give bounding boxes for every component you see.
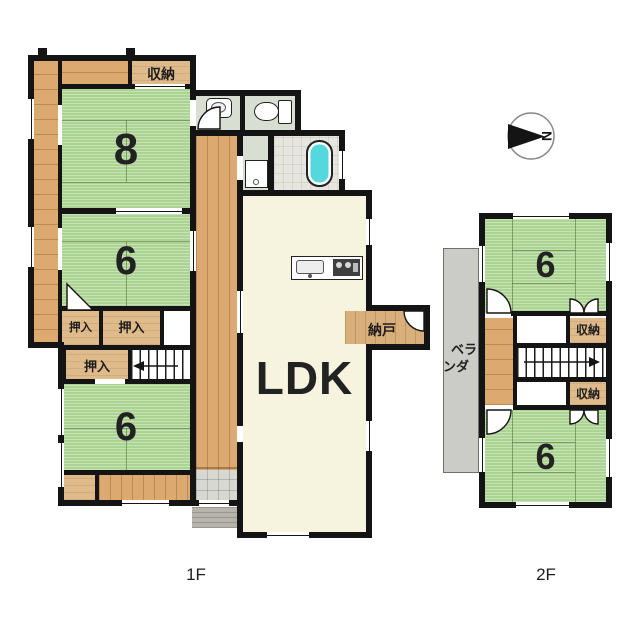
tatami-line [62,182,190,183]
washer-door [253,179,259,185]
window-marker [28,98,34,140]
veranda-label: ベラ ンダ [443,341,479,375]
wall [237,190,372,196]
wall [58,61,62,342]
room6-south-2f-label: 6 [485,432,606,482]
wall [58,306,196,311]
room6-north-2f-label: 6 [485,240,606,290]
kitchen-stove [333,259,360,276]
room6-middle-label: 6 [62,238,190,284]
wall [513,316,517,408]
wall [513,405,612,410]
kitchen-sink [296,260,324,274]
door-opening [237,156,243,180]
window-marker [606,242,612,282]
bathtub [306,140,333,187]
stair-upper-landing [164,311,190,345]
wall [511,311,612,316]
engawa-corridor [34,58,58,345]
hallway-2f [485,318,513,405]
wall-cap [38,48,47,56]
wall [28,55,196,61]
window-marker [515,502,570,508]
window-marker [28,226,34,268]
wall [513,377,612,382]
wall [366,196,372,311]
entrance-door-marker [198,500,230,506]
wall [160,311,164,345]
wall [237,130,243,538]
window-marker [121,500,170,506]
wall [193,90,301,96]
closet-bottom-left [62,475,95,500]
nando-label: 納戸 [352,320,412,340]
closet-c-label: 押入 [66,355,128,379]
entrance-porch [192,507,238,528]
room6-bottom-label: 6 [62,404,190,450]
veranda-label-line2: ンダ [443,358,469,375]
compass-circle [508,113,554,159]
wall [58,379,196,384]
wall [240,90,245,130]
sliding-door-marker [237,290,243,334]
genkan-entrance [196,470,237,502]
window-marker [266,532,310,538]
wall [513,343,612,348]
window-marker [366,218,372,246]
compass-needle [508,124,545,149]
room8-label: 8 [62,124,190,176]
veranda-label-line1: ベラ [451,341,477,358]
compass-north-label: N [539,131,555,141]
staircase-2f [517,348,606,377]
toilet-tank [278,100,292,124]
wall [58,470,196,475]
storage-top-label: 収納 [132,62,190,86]
floor2-label: 2F [524,564,568,586]
sliding-door-marker [190,230,196,272]
window-marker [339,150,345,180]
stair-landing-upper-2f [517,318,566,343]
window-marker [366,420,372,452]
wall [95,475,99,500]
veranda-strip-bottom [99,475,190,500]
washing-machine [245,160,268,188]
hallway [196,136,237,470]
stove-grill [353,263,358,272]
kitchen-counter [291,256,363,280]
stove-burner [345,262,351,268]
window-marker [512,213,570,219]
stair-landing-lower-2f [517,382,566,405]
window-marker [606,438,612,478]
wall [268,136,274,192]
wall [424,305,430,350]
stove-burner [336,262,342,268]
kitchen-faucet [308,274,312,278]
toilet-bowl [254,102,279,121]
closet-a-label: 押入 [62,316,99,340]
ldk-label: LDK [243,352,366,404]
door-opening [237,426,243,442]
wall [366,305,424,311]
closet-b-label: 押入 [103,316,160,340]
sink-drain [218,113,221,116]
floor1-label: 1F [174,564,218,586]
storage-lower-2f-label: 収納 [570,385,606,403]
sliding-door-marker [115,208,183,214]
door-opening [95,379,125,384]
floor-plan: N 収納 8 6 押入 押入 押入 6 LDK 納戸 6 収納 収納 6 ベラ … [0,0,640,640]
genkan-step-line [196,467,237,469]
door-opening [190,100,196,126]
sink-bowl [211,102,226,113]
wall [366,344,424,350]
washbasin-sink [206,98,232,118]
storage-upper-2f-label: 収納 [570,321,606,339]
wall [28,342,62,348]
